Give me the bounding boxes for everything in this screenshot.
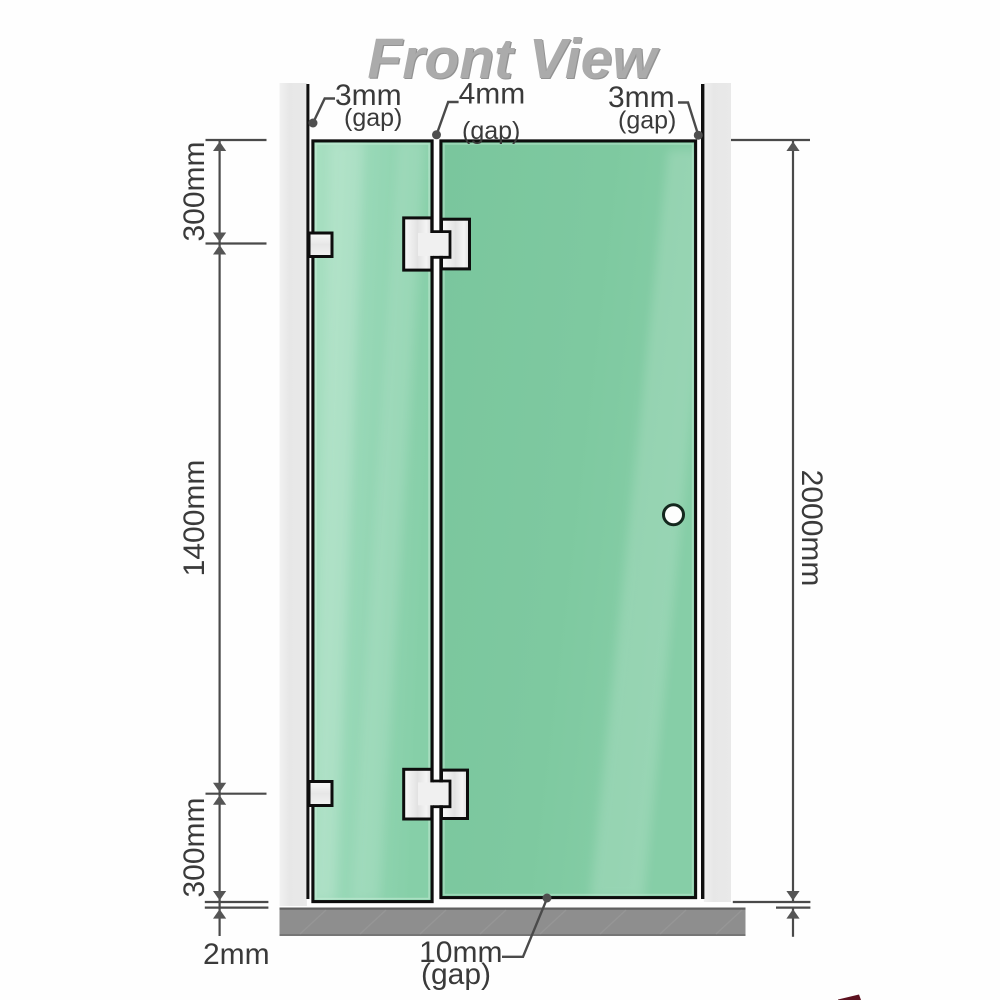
svg-text:300mm: 300mm [178, 141, 211, 241]
svg-text:300mm: 300mm [178, 797, 211, 897]
svg-text:2mm: 2mm [203, 938, 270, 971]
svg-text:2000mm: 2000mm [795, 470, 828, 587]
svg-text:(gap): (gap) [618, 107, 676, 135]
svg-text:(gap): (gap) [462, 117, 520, 145]
svg-text:(gap): (gap) [344, 104, 402, 132]
svg-text:(gap): (gap) [421, 958, 491, 991]
svg-text:4mm: 4mm [459, 78, 526, 111]
svg-text:1400mm: 1400mm [178, 460, 211, 577]
